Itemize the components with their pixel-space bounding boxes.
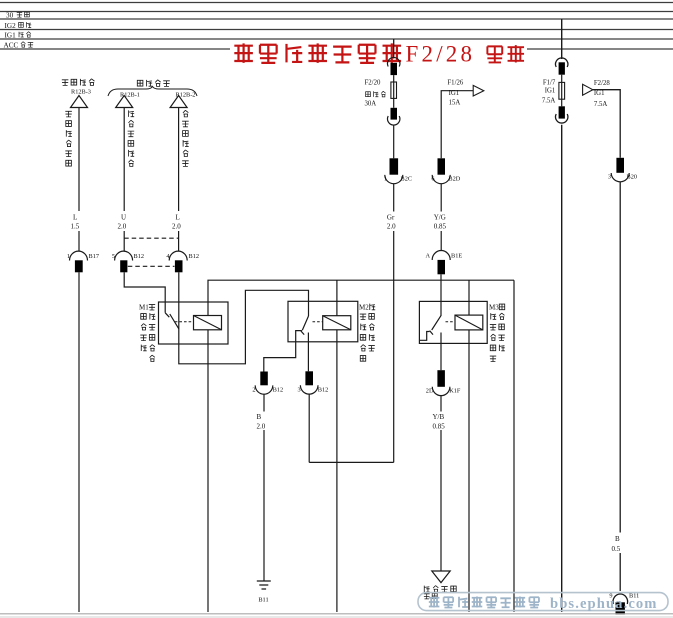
svg-text:F2/28: F2/28 <box>594 80 610 87</box>
svg-text:0.85: 0.85 <box>434 223 447 231</box>
svg-text:ACC: ACC <box>4 42 19 50</box>
svg-text:2.0: 2.0 <box>387 223 396 231</box>
svg-text:3: 3 <box>608 174 611 181</box>
svg-text:B12: B12 <box>273 387 284 394</box>
svg-text:IG2: IG2 <box>5 22 17 30</box>
svg-text:B17: B17 <box>89 253 100 260</box>
svg-text:M1: M1 <box>139 304 149 312</box>
svg-text:A: A <box>425 253 430 260</box>
svg-text:2.0: 2.0 <box>257 422 266 430</box>
svg-text:2.0: 2.0 <box>172 223 181 231</box>
svg-text:B2D: B2D <box>448 175 460 182</box>
svg-text:B12: B12 <box>134 253 145 260</box>
svg-text:0.5: 0.5 <box>612 545 621 553</box>
svg-text:L: L <box>176 214 180 222</box>
svg-text:3: 3 <box>298 387 301 394</box>
svg-text:7.5A: 7.5A <box>594 101 607 108</box>
svg-text:2.0: 2.0 <box>118 223 127 231</box>
svg-text:IG1: IG1 <box>5 32 17 40</box>
svg-text:B20: B20 <box>627 174 638 181</box>
svg-text:2: 2 <box>252 387 255 394</box>
svg-text:U: U <box>121 214 126 222</box>
svg-text:L: L <box>73 214 77 222</box>
svg-text:B2C: B2C <box>401 175 413 182</box>
svg-text:Y/B: Y/B <box>433 413 445 421</box>
svg-text:2D: 2D <box>426 387 434 394</box>
svg-text:F1/26: F1/26 <box>447 79 463 86</box>
svg-text:30: 30 <box>6 12 14 20</box>
svg-text:F2/28: F2/28 <box>406 42 476 67</box>
svg-text:6: 6 <box>431 175 434 182</box>
svg-text:Gr: Gr <box>387 213 395 221</box>
svg-text:IG1: IG1 <box>449 90 460 97</box>
svg-text:1: 1 <box>384 175 387 182</box>
svg-text:R12B-3: R12B-3 <box>71 89 91 96</box>
svg-text:B11: B11 <box>258 597 268 604</box>
svg-text:0.85: 0.85 <box>433 422 446 430</box>
svg-text:IG1: IG1 <box>545 88 556 95</box>
svg-text:1: 1 <box>67 253 70 260</box>
svg-text:Y/G: Y/G <box>434 213 446 221</box>
svg-text:K1F: K1F <box>449 387 461 394</box>
svg-text:B: B <box>257 413 262 421</box>
svg-text:5: 5 <box>112 253 115 260</box>
svg-text:B1E: B1E <box>451 253 462 260</box>
svg-text:B12: B12 <box>318 387 329 394</box>
svg-text:B12: B12 <box>189 253 200 260</box>
svg-text:F2/20: F2/20 <box>365 79 381 86</box>
svg-text:7.5A: 7.5A <box>542 98 555 105</box>
svg-text:B: B <box>615 535 620 543</box>
svg-text:1.5: 1.5 <box>71 223 80 231</box>
svg-text:M3: M3 <box>489 304 499 312</box>
svg-text:F1/7: F1/7 <box>543 80 556 87</box>
svg-text:15A: 15A <box>449 100 461 107</box>
svg-text:bbs.ephua.com: bbs.ephua.com <box>550 596 658 612</box>
svg-text:IG1: IG1 <box>594 90 605 97</box>
svg-text:M2: M2 <box>359 304 369 312</box>
svg-text:30A: 30A <box>365 100 377 107</box>
